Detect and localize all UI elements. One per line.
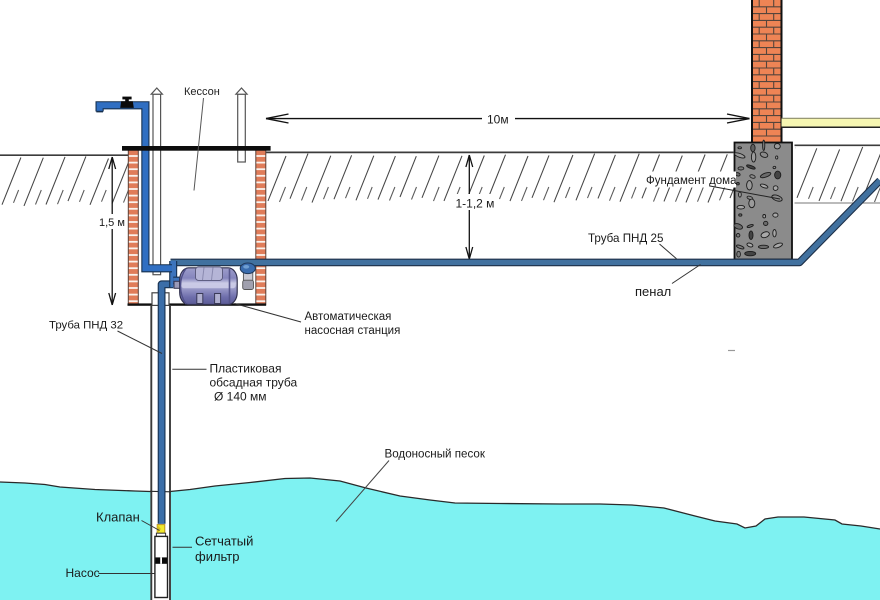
svg-text:фильтр: фильтр — [195, 549, 239, 564]
svg-text:Кессон: Кессон — [184, 86, 220, 98]
svg-text:10м: 10м — [487, 113, 509, 127]
svg-text:Водоносный песок: Водоносный песок — [385, 448, 486, 461]
svg-text:Автоматическая: Автоматическая — [305, 311, 392, 323]
svg-text:Пластиковая: Пластиковая — [210, 362, 282, 376]
svg-text:Ø 140 мм: Ø 140 мм — [214, 390, 267, 404]
svg-text:Сетчатый: Сетчатый — [195, 534, 253, 549]
svg-text:Фундамент дома: Фундамент дома — [646, 175, 737, 187]
svg-text:1,5 м: 1,5 м — [99, 217, 125, 229]
svg-text:Труба ПНД 25: Труба ПНД 25 — [588, 232, 663, 245]
svg-text:Клапан: Клапан — [96, 510, 140, 525]
svg-text:1-1,2 м: 1-1,2 м — [456, 197, 495, 211]
svg-text:Труба ПНД 32: Труба ПНД 32 — [49, 320, 123, 332]
svg-text:Насос: Насос — [66, 566, 100, 580]
svg-text:обсадная труба: обсадная труба — [210, 376, 298, 390]
svg-text:пенал: пенал — [635, 284, 671, 299]
svg-text:насосная станция: насосная станция — [305, 325, 401, 337]
